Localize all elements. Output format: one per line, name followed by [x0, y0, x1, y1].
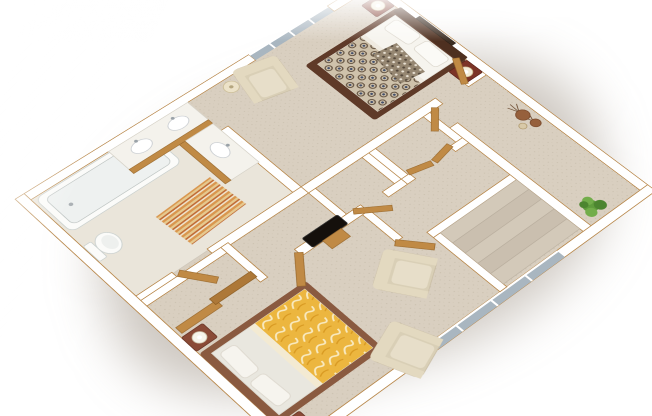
floorplan-scene [15, 0, 652, 416]
floorplan-svg [15, 0, 652, 416]
entry-door [431, 108, 438, 132]
floorplan-render [0, 0, 652, 416]
